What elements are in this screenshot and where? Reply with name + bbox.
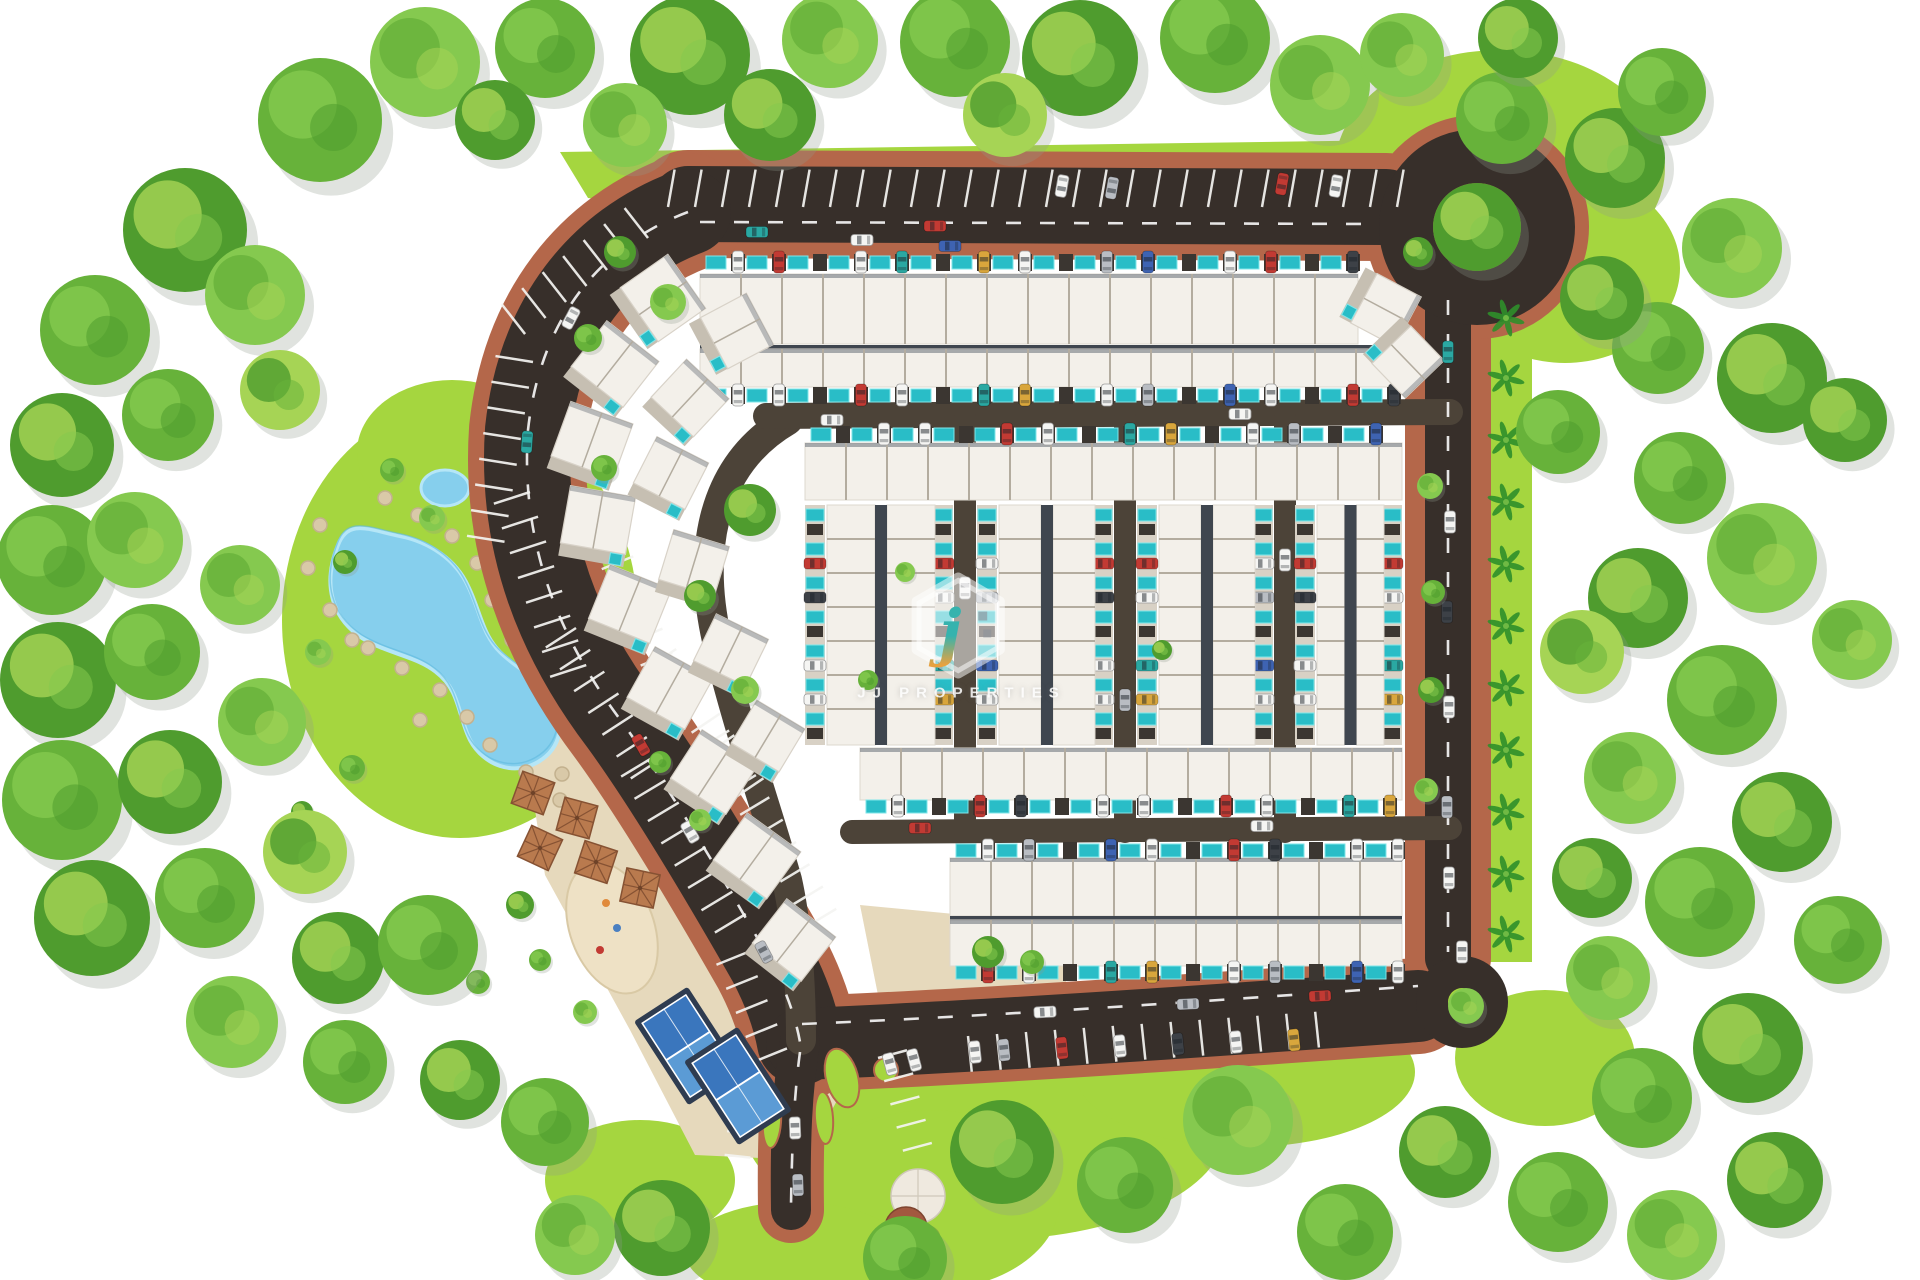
car-rear-window (1349, 267, 1358, 270)
forest-tree (34, 860, 160, 989)
car (1221, 795, 1232, 817)
forest-tree (205, 245, 314, 356)
plunge-pool (1098, 428, 1118, 441)
plunge-pool (1366, 966, 1386, 979)
tree-texture (1206, 24, 1248, 66)
plunge-pool (1138, 611, 1156, 623)
car-windshield (894, 801, 903, 806)
car-rear-window (794, 1190, 803, 1193)
tree-texture (1117, 1173, 1153, 1209)
car (804, 558, 826, 569)
car-windshield (1107, 967, 1116, 972)
car (976, 660, 998, 671)
tree-texture (746, 503, 766, 523)
plunge-pool (911, 256, 931, 269)
car-windshield (810, 695, 815, 704)
car-windshield (1099, 801, 1108, 806)
car (1442, 796, 1453, 818)
driveway-pad (1139, 524, 1155, 535)
tree-texture (1595, 287, 1627, 319)
driveway-pad (807, 626, 823, 637)
plunge-pool (956, 966, 976, 979)
car-windshield (898, 390, 907, 395)
car-rear-window (1044, 439, 1053, 442)
car-windshield (810, 661, 815, 670)
driveway-pad (979, 728, 995, 739)
plunge-pool (1358, 800, 1378, 813)
car-rear-window (898, 267, 907, 270)
car-rear-window (1003, 439, 1012, 442)
palm-crown (1503, 871, 1509, 877)
car-rear-window (1310, 661, 1313, 670)
tree-texture (1673, 466, 1708, 501)
roof-shadow (950, 920, 1402, 924)
tree-texture (247, 282, 285, 320)
plunge-pool (1254, 577, 1272, 589)
car-rear-window (1386, 811, 1395, 814)
car (1443, 341, 1454, 363)
house-band (860, 748, 1402, 817)
driveway-pad (1255, 524, 1271, 535)
car-windshield (1025, 845, 1034, 850)
tree-texture (1691, 888, 1733, 930)
plunge-pool (1254, 679, 1272, 691)
car (976, 558, 998, 569)
plunge-pool (806, 509, 824, 521)
tree-texture (49, 665, 93, 709)
tree-texture (658, 759, 666, 767)
shrub-dot (323, 603, 337, 617)
car-windshield (1098, 661, 1103, 670)
forest-tree (263, 810, 355, 903)
driveway-pad (1309, 964, 1323, 981)
tree-texture (1429, 687, 1439, 697)
tree-texture (338, 1051, 370, 1083)
car-windshield (1121, 695, 1130, 700)
plunge-pool (1034, 389, 1054, 402)
pool-parking-lane (1295, 505, 1315, 745)
palm-crown (1503, 747, 1509, 753)
driveway-pad (1297, 524, 1313, 535)
car-rear-window (857, 400, 866, 403)
plunge-pool (1120, 844, 1140, 857)
plunge-pool (1296, 509, 1314, 521)
villa-roof-row (805, 443, 1402, 500)
car-rear-window (984, 855, 993, 858)
car-rear-window (1445, 883, 1454, 886)
tree-texture (1575, 641, 1607, 673)
shrub-dot (483, 738, 497, 752)
tree-texture (537, 35, 575, 73)
car-windshield (1144, 390, 1153, 395)
car-rear-window (992, 559, 995, 568)
forest-tree (501, 1078, 597, 1176)
house-column-group (1136, 505, 1274, 745)
car (979, 251, 990, 273)
car (1294, 694, 1316, 705)
shrub-dot (460, 710, 474, 724)
plunge-pool (1157, 256, 1177, 269)
car-windshield (1349, 257, 1358, 262)
car (1102, 251, 1113, 273)
tree-texture (161, 403, 196, 438)
house-column-group (976, 505, 1114, 745)
car (1294, 558, 1316, 569)
car (1113, 1034, 1126, 1057)
forest-tree (303, 1020, 395, 1113)
driveway-pad (935, 524, 951, 535)
tree-texture (1601, 967, 1633, 999)
plunge-pool (978, 611, 996, 623)
car-rear-window (980, 400, 989, 403)
car-windshield (1148, 967, 1157, 972)
tree-texture (569, 1225, 599, 1255)
car (1120, 689, 1131, 711)
plunge-pool (1094, 543, 1112, 555)
house-band (805, 423, 1402, 500)
car-windshield (1098, 593, 1103, 602)
tree-texture (1431, 589, 1440, 598)
car-rear-window (1325, 991, 1329, 1000)
cabana-umbrella (620, 868, 660, 908)
forest-tree (292, 912, 392, 1014)
car-rear-window (961, 593, 970, 596)
tree-texture (86, 316, 128, 358)
plunge-pool (1284, 844, 1304, 857)
plunge-pool (609, 553, 623, 566)
tree-texture (898, 1247, 930, 1279)
forest-tree (1682, 198, 1791, 309)
car-windshield (1267, 390, 1276, 395)
tree-texture (1586, 868, 1616, 898)
car-rear-window (1443, 812, 1452, 815)
car (1442, 601, 1453, 623)
plunge-pool (1094, 509, 1112, 521)
car-windshield (1021, 390, 1030, 395)
car-rear-window (1394, 977, 1403, 980)
car (893, 795, 904, 817)
driveway-pad (959, 426, 973, 443)
plunge-pool (978, 713, 996, 725)
car-rear-window (775, 400, 784, 403)
tree-texture (343, 559, 352, 568)
car-windshield (1444, 347, 1453, 352)
villa-roof-row (700, 349, 1402, 387)
plunge-pool (978, 577, 996, 589)
service-alley (1041, 505, 1053, 745)
plunge-pool (975, 428, 995, 441)
plunge-pool (1296, 543, 1314, 555)
car-rear-window (1353, 855, 1362, 858)
car-rear-window (1390, 400, 1399, 403)
car-windshield (982, 559, 987, 568)
car (1016, 795, 1027, 817)
car (1225, 251, 1236, 273)
car-rear-window (820, 559, 823, 568)
tree-texture (1753, 544, 1795, 586)
plunge-pool (1153, 800, 1173, 813)
plunge-pool (1138, 543, 1156, 555)
car-rear-window (1017, 811, 1026, 814)
plunge-pool (911, 389, 931, 402)
plunge-pool (1138, 679, 1156, 691)
villa-roof-row (950, 920, 1402, 966)
car-rear-window (948, 559, 951, 568)
driveway-pad (1297, 626, 1313, 637)
car (1393, 839, 1404, 861)
car (976, 592, 998, 603)
plunge-pool (893, 428, 913, 441)
plunge-pool (747, 256, 767, 269)
car-rear-window (1345, 811, 1354, 814)
tree-texture (1838, 409, 1870, 441)
plunge-pool (1280, 389, 1300, 402)
car-windshield (921, 429, 930, 434)
plunge-pool (934, 543, 952, 555)
plunge-pool (1235, 800, 1255, 813)
plunge-pool (1198, 256, 1218, 269)
driveway-pad (1384, 626, 1400, 637)
car-windshield (938, 559, 943, 568)
forest-tree (1794, 896, 1890, 994)
plunge-pool (1280, 256, 1300, 269)
car-windshield (734, 390, 743, 395)
car-rear-window (820, 661, 823, 670)
car-rear-window (1353, 977, 1362, 980)
car (1125, 423, 1136, 445)
car-windshield (976, 801, 985, 806)
driveway-pad (1328, 426, 1342, 443)
plunge-pool (948, 800, 968, 813)
palm-crown (1503, 315, 1509, 321)
tree-texture (618, 114, 650, 146)
driveway-pad (1186, 842, 1200, 859)
plunge-pool (870, 256, 890, 269)
car (1352, 961, 1363, 983)
car-rear-window (1446, 527, 1455, 530)
car-rear-window (791, 1133, 800, 1136)
palm-crown (1503, 375, 1509, 381)
plunge-pool (1254, 713, 1272, 725)
car-rear-window (1267, 267, 1276, 270)
driveway-pad (1186, 964, 1200, 981)
car-windshield (1057, 1043, 1066, 1048)
car-rear-window (775, 267, 784, 270)
pool-parking-lane (933, 505, 953, 745)
driveway-pad (936, 387, 950, 404)
car-rear-window (1268, 593, 1271, 602)
tree-texture (1630, 585, 1668, 623)
forest-tree (240, 350, 327, 439)
driveway-pad (1297, 728, 1313, 739)
tree-texture (144, 640, 180, 676)
plunge-pool (829, 256, 849, 269)
driveway-pad (1059, 387, 1073, 404)
car-windshield (1258, 695, 1263, 704)
plunge-pool (978, 543, 996, 555)
shrub-dot (301, 561, 315, 575)
plunge-pool (1325, 966, 1345, 979)
palm-crown (1503, 809, 1509, 815)
plunge-pool (1180, 428, 1200, 441)
tree-texture (274, 380, 304, 410)
car-windshield (1115, 1041, 1124, 1046)
tree-texture (52, 784, 98, 830)
corner-villa (627, 437, 708, 521)
driveway-pad (1139, 626, 1155, 637)
car-windshield (1443, 802, 1452, 807)
car (960, 577, 971, 599)
car-windshield (1258, 661, 1263, 670)
tree-texture (602, 465, 612, 475)
plunge-pool (993, 389, 1013, 402)
driveway-pad (1255, 626, 1271, 637)
plunge-pool (1383, 645, 1401, 657)
plunge-pool (1079, 844, 1099, 857)
car-rear-window (1444, 357, 1453, 360)
car (939, 241, 961, 252)
house-column-group (804, 505, 954, 745)
car (774, 384, 785, 406)
car-rear-window (921, 439, 930, 442)
plunge-pool (1202, 844, 1222, 857)
car (897, 384, 908, 406)
plunge-pool (1079, 966, 1099, 979)
car-windshield (1107, 845, 1116, 850)
palm-crown (1503, 931, 1509, 937)
car (1102, 384, 1113, 406)
car-rear-window (1108, 559, 1111, 568)
tree-texture (454, 1070, 484, 1100)
car-windshield (775, 390, 784, 395)
car (1393, 961, 1404, 983)
corner-villa (558, 486, 635, 567)
car (821, 415, 843, 426)
street-tree (529, 949, 553, 973)
palm-crown (1503, 685, 1509, 691)
service-alley (875, 505, 887, 745)
car-windshield (980, 257, 989, 262)
car-rear-window (1121, 705, 1130, 708)
car-windshield (1103, 390, 1112, 395)
tree-texture (1763, 364, 1805, 406)
roof-shadow (805, 443, 1402, 447)
plunge-pool (806, 679, 824, 691)
car (975, 795, 986, 817)
car-windshield (1249, 429, 1258, 434)
car (1106, 839, 1117, 861)
forest-tree (155, 848, 264, 959)
forest-tree (1627, 1190, 1725, 1280)
car-windshield (810, 593, 815, 602)
car (1136, 592, 1158, 603)
shrub-dot (433, 683, 447, 697)
car-rear-window (1099, 811, 1108, 814)
driveway-pad (1301, 798, 1315, 815)
plunge-pool (1383, 577, 1401, 589)
driveway-pad (1082, 426, 1096, 443)
car (774, 251, 785, 273)
villa-roof-row (950, 858, 1402, 916)
plunge-pool (978, 645, 996, 657)
car-windshield (734, 257, 743, 262)
car-rear-window (1144, 400, 1153, 403)
car-windshield (1372, 429, 1381, 434)
car-rear-window (1230, 855, 1239, 858)
car-windshield (1222, 801, 1231, 806)
car-windshield (1281, 555, 1290, 560)
plunge-pool (811, 428, 831, 441)
car-windshield (938, 593, 943, 602)
car-rear-window (1271, 977, 1280, 980)
car (856, 251, 867, 273)
plunge-pool (1317, 800, 1337, 813)
plunge-pool (706, 256, 726, 269)
car-rear-window (1103, 267, 1112, 270)
car (1348, 384, 1359, 406)
car (909, 823, 931, 834)
tree-texture (420, 932, 458, 970)
car-rear-window (1397, 695, 1400, 704)
car-windshield (1445, 702, 1454, 707)
car-windshield (1349, 390, 1358, 395)
car (1262, 795, 1273, 817)
tree-texture (1337, 1220, 1373, 1256)
car-windshield (1387, 559, 1392, 568)
tree-texture (654, 1216, 690, 1252)
tree-texture (998, 104, 1030, 136)
car-rear-window (820, 695, 823, 704)
car-rear-window (1140, 811, 1149, 814)
tree-texture (1160, 647, 1168, 655)
plunge-pool (993, 256, 1013, 269)
car-windshield (1271, 967, 1280, 972)
car-windshield (1458, 947, 1467, 952)
car-windshield (1271, 845, 1280, 850)
driveway-pad (1305, 387, 1319, 404)
main-road (688, 204, 1386, 207)
car-windshield (752, 228, 757, 237)
plunge-pool (934, 428, 954, 441)
car-windshield (794, 1180, 803, 1185)
plunge-pool (866, 800, 886, 813)
car (1229, 1030, 1242, 1053)
driveway-pad (1095, 728, 1111, 739)
car-rear-window (734, 267, 743, 270)
site-plan-svg (0, 0, 1920, 1280)
plunge-pool (1344, 428, 1364, 441)
forest-tree (1552, 838, 1639, 927)
car-rear-window (1025, 977, 1034, 980)
car-rear-window (1126, 439, 1135, 442)
plunge-pool (829, 389, 849, 402)
car-windshield (970, 1047, 979, 1052)
car (856, 384, 867, 406)
plunge-pool (1194, 800, 1214, 813)
car-windshield (880, 429, 889, 434)
car (1289, 423, 1300, 445)
car-rear-window (980, 267, 989, 270)
palm-crown (1503, 561, 1509, 567)
tree-texture (1071, 43, 1115, 87)
plunge-pool (1284, 966, 1304, 979)
car-windshield (1353, 967, 1362, 972)
tree-texture (1438, 1140, 1473, 1175)
plunge-pool (806, 543, 824, 555)
car-rear-window (1108, 661, 1111, 670)
service-alley (1345, 505, 1357, 745)
car-rear-window (992, 695, 995, 704)
